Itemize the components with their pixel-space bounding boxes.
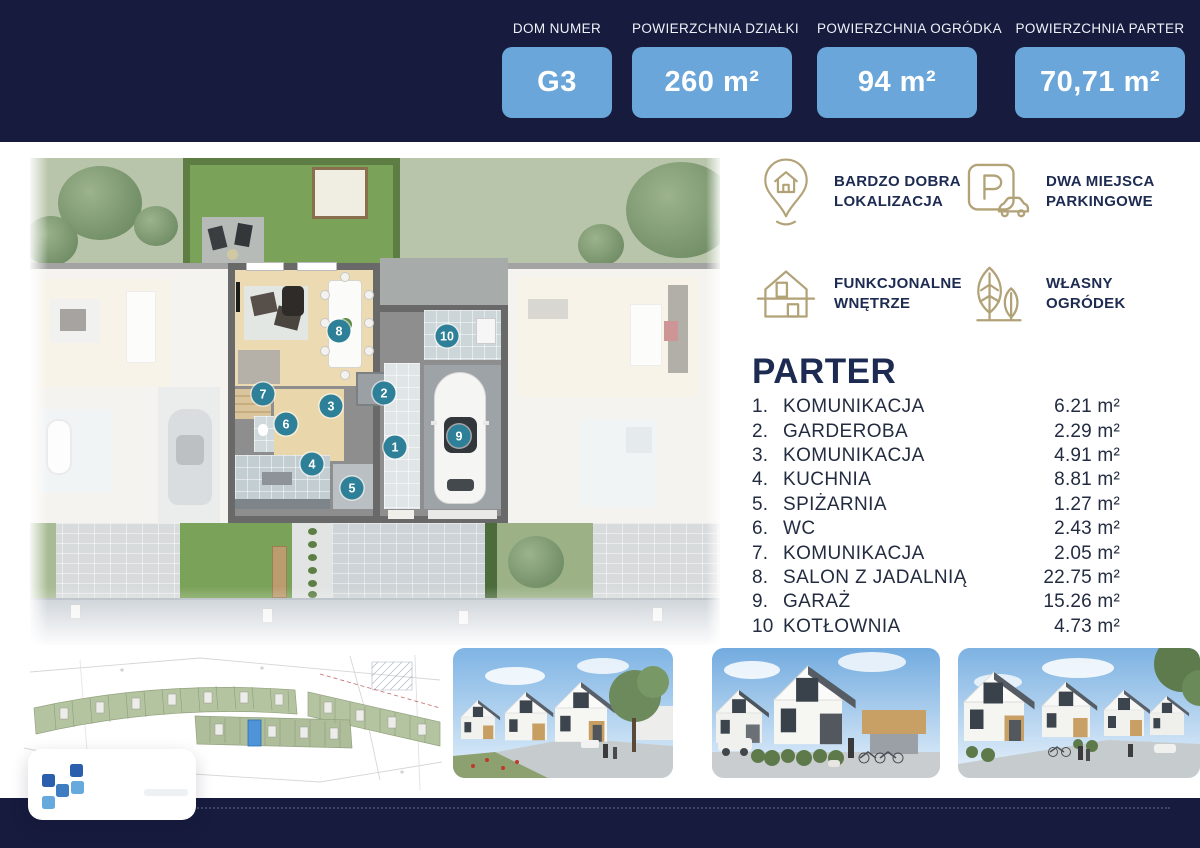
garden-leaves-icon [966,263,1030,325]
badge-plot-area-value: 260 m² [632,47,792,118]
logo-square [42,796,55,809]
room-name: KUCHNIA [783,469,1054,491]
dark-sofa [282,286,304,316]
room-list-row: 8. SALON Z JADALNIĄ 22.75 m² [752,566,1120,590]
room-number: 7. [752,543,783,565]
room-name: SPIŻARNIA [783,494,1054,516]
room-number-label: 4 [309,457,316,471]
grass-tuft [308,541,317,548]
dining-chair [340,370,350,380]
grass-tuft [308,591,317,598]
room-number-label: 10 [440,329,454,343]
room-number: 5. [752,494,783,516]
window [246,262,284,271]
feature-parking-label: DWA MIEJSCA PARKINGOWE [1046,172,1155,212]
pixel-squares-logo-icon [42,764,86,810]
grass-tuft [308,580,317,587]
room-name: WC [783,518,1054,540]
room-number-marker: 1 [384,436,407,459]
room-name: GARAŻ [783,591,1043,613]
room-number-label: 3 [328,399,335,413]
street-bin [262,608,273,623]
developer-logo-card [28,749,196,820]
room-name: GARDEROBA [783,421,1054,443]
location-pin-house-icon [754,154,818,230]
parking-sign-car-icon [966,162,1030,222]
room-number: 3. [752,445,783,467]
room-number-marker: 7 [252,383,275,406]
room-list-row: 5. SPIŻARNIA 1.27 m² [752,493,1120,517]
badge-house-number-value: G3 [502,47,612,118]
washout-overlay [30,269,228,523]
room-area: 8.81 m² [1054,469,1120,491]
grass-tuft [308,554,317,561]
badge-floor-area-label: POWIERZCHNIA PARTER [1015,21,1185,36]
room-number-marker: 2 [373,382,396,405]
room-name: KOMUNIKACJA [783,396,1054,418]
room-name: SALON Z JADALNIĄ [783,567,1043,589]
grass-tuft [308,528,317,535]
badge-house-number: DOM NUMER G3 [502,47,612,118]
room-area: 6.21 m² [1054,396,1120,418]
badge-garden-area-label: POWIERZCHNIA OGRÓDKA [817,21,977,36]
garden-pergola-table [312,167,368,219]
room-number-marker: 9 [448,425,471,448]
logo-square [56,784,69,797]
room-area: 2.05 m² [1054,543,1120,565]
room-number-marker: 8 [328,320,351,343]
feature-line: DWA MIEJSCA [1046,172,1155,192]
room-area: 2.43 m² [1054,518,1120,540]
toilet [258,424,268,436]
feature-line: WNĘTRZE [834,294,962,314]
room-area: 1.27 m² [1054,494,1120,516]
room-list-row: 9. GARAŻ 15.26 m² [752,590,1120,614]
kitchen-counter [235,499,330,509]
room-number-label: 7 [260,387,267,401]
tree [134,206,178,246]
feature-location-label: BARDZO DOBRA LOKALIZACJA [834,172,961,212]
left-lawn [30,523,56,598]
badge-floor-area-value: 70,71 m² [1015,47,1185,118]
room-area: 22.75 m² [1043,567,1120,589]
badge-garden-area-value: 94 m² [817,47,977,118]
street-bin [458,610,469,625]
street-bin [652,607,663,622]
room-list: 1. KOMUNIKACJA 6.21 m² 2. GARDEROBA 2.29… [752,395,1120,639]
patio-table [227,249,238,260]
house-interior-icon [754,265,818,323]
feature-location: BARDZO DOBRA LOKALIZACJA [754,150,961,234]
feature-line: LOKALIZACJA [834,192,961,212]
room-area: 15.26 m² [1043,591,1120,613]
feature-line: WŁASNY [1046,274,1126,294]
exterior-photo-1 [453,648,673,778]
room-name: KOMUNIKACJA [783,445,1054,467]
floor-plan-render: 1 2 3 4 5 6 7 [30,158,720,645]
room-number-marker: 3 [320,395,343,418]
room-list-row: 6. WC 2.43 m² [752,517,1120,541]
badge-plot-area-label: POWIERZCHNIA DZIAŁKI [632,21,792,36]
room-number-label: 8 [336,324,343,338]
feature-parking: DWA MIEJSCA PARKINGOWE [966,150,1155,234]
room-area: 2.29 m² [1054,421,1120,443]
car-mirror [431,421,437,425]
dining-chair [364,346,374,356]
room-number-label: 5 [349,481,356,495]
logo-wordmark-faint [144,789,188,796]
room-area: 4.91 m² [1054,445,1120,467]
floor-title: PARTER [752,352,896,392]
car-rear-window [447,479,474,491]
room-number-marker: 6 [275,413,298,436]
tree [508,536,564,588]
grass-tuft [308,567,317,574]
hedge [485,523,497,605]
dining-chair [340,272,350,282]
room-number-marker: 5 [341,477,364,500]
washout-overlay [508,269,720,523]
driveway [332,523,485,598]
exterior-photo-3 [958,648,1200,778]
window [297,262,337,271]
private-garden [183,158,400,266]
room-list-row: 3. KOMUNIKACJA 4.91 m² [752,444,1120,468]
property-flyer-page: DOM NUMER G3 POWIERZCHNIA DZIAŁKI 260 m²… [0,0,1200,848]
room-number-label: 2 [381,386,388,400]
room-number-marker: 10 [436,325,459,348]
feature-interior-label: FUNKCJONALNE WNĘTRZE [834,274,962,314]
badge-house-number-label: DOM NUMER [502,21,612,36]
dining-chair [364,318,374,328]
lounge-chair [234,223,253,247]
neighbor-unit-right [508,263,720,523]
room-number: 2. [752,421,783,443]
badge-garden-area: POWIERZCHNIA OGRÓDKA 94 m² [817,47,977,118]
lounge-chair [208,226,228,251]
header-bar: DOM NUMER G3 POWIERZCHNIA DZIAŁKI 260 m²… [0,0,1200,142]
room-number-label: 6 [283,417,290,431]
room-number: 1. [752,396,783,418]
room-number: 9. [752,591,783,613]
room-name: KOTŁOWNIA [783,616,1054,638]
dining-chair [320,346,330,356]
garage-door [428,510,497,519]
room-list-row: 2. GARDEROBA 2.29 m² [752,419,1120,443]
exterior-photo-2 [712,648,940,778]
car-mirror [483,421,489,425]
room-number: 4. [752,469,783,491]
logo-square [71,781,84,794]
room-number-label: 1 [392,440,399,454]
dining-chair [320,290,330,300]
boiler [476,318,496,344]
feature-garden-label: WŁASNY OGRÓDEK [1046,274,1126,314]
street [30,598,720,645]
front-door [388,510,414,519]
room-list-row: 7. KOMUNIKACJA 2.05 m² [752,541,1120,565]
logo-square [42,774,55,787]
tree [578,224,624,266]
logo-square [70,764,83,777]
room-name: KOMUNIKACJA [783,543,1054,565]
room-number-label: 9 [456,429,463,443]
rear-terrace [380,258,508,305]
room-list-row: 4. KUCHNIA 8.81 m² [752,468,1120,492]
room-area: 4.73 m² [1054,616,1120,638]
room-list-row: 1. KOMUNIKACJA 6.21 m² [752,395,1120,419]
badge-floor-area: POWIERZCHNIA PARTER 70,71 m² [1015,47,1185,118]
couch [238,350,280,384]
feature-interior: FUNKCJONALNE WNĘTRZE [754,254,962,334]
footer-fine-print [30,807,1170,809]
street-bin [70,604,81,619]
garden-bench [272,546,287,598]
garden-patio [202,217,264,266]
feature-line: BARDZO DOBRA [834,172,961,192]
kitchen-island [262,472,292,485]
neighbor-unit-left [30,263,228,523]
feature-line: OGRÓDEK [1046,294,1126,314]
feature-garden: WŁASNY OGRÓDEK [966,254,1126,334]
highlighted-plot [248,720,261,746]
feature-line: FUNKCJONALNE [834,274,962,294]
room-number-marker: 4 [301,453,324,476]
dining-chair [364,290,374,300]
feature-line: PARKINGOWE [1046,192,1155,212]
room-number: 10 [752,616,783,638]
room-list-row: 10 KOTŁOWNIA 4.73 m² [752,615,1120,639]
tv [236,282,240,312]
badge-plot-area: POWIERZCHNIA DZIAŁKI 260 m² [632,47,792,118]
room-number: 8. [752,567,783,589]
room-number: 6. [752,518,783,540]
